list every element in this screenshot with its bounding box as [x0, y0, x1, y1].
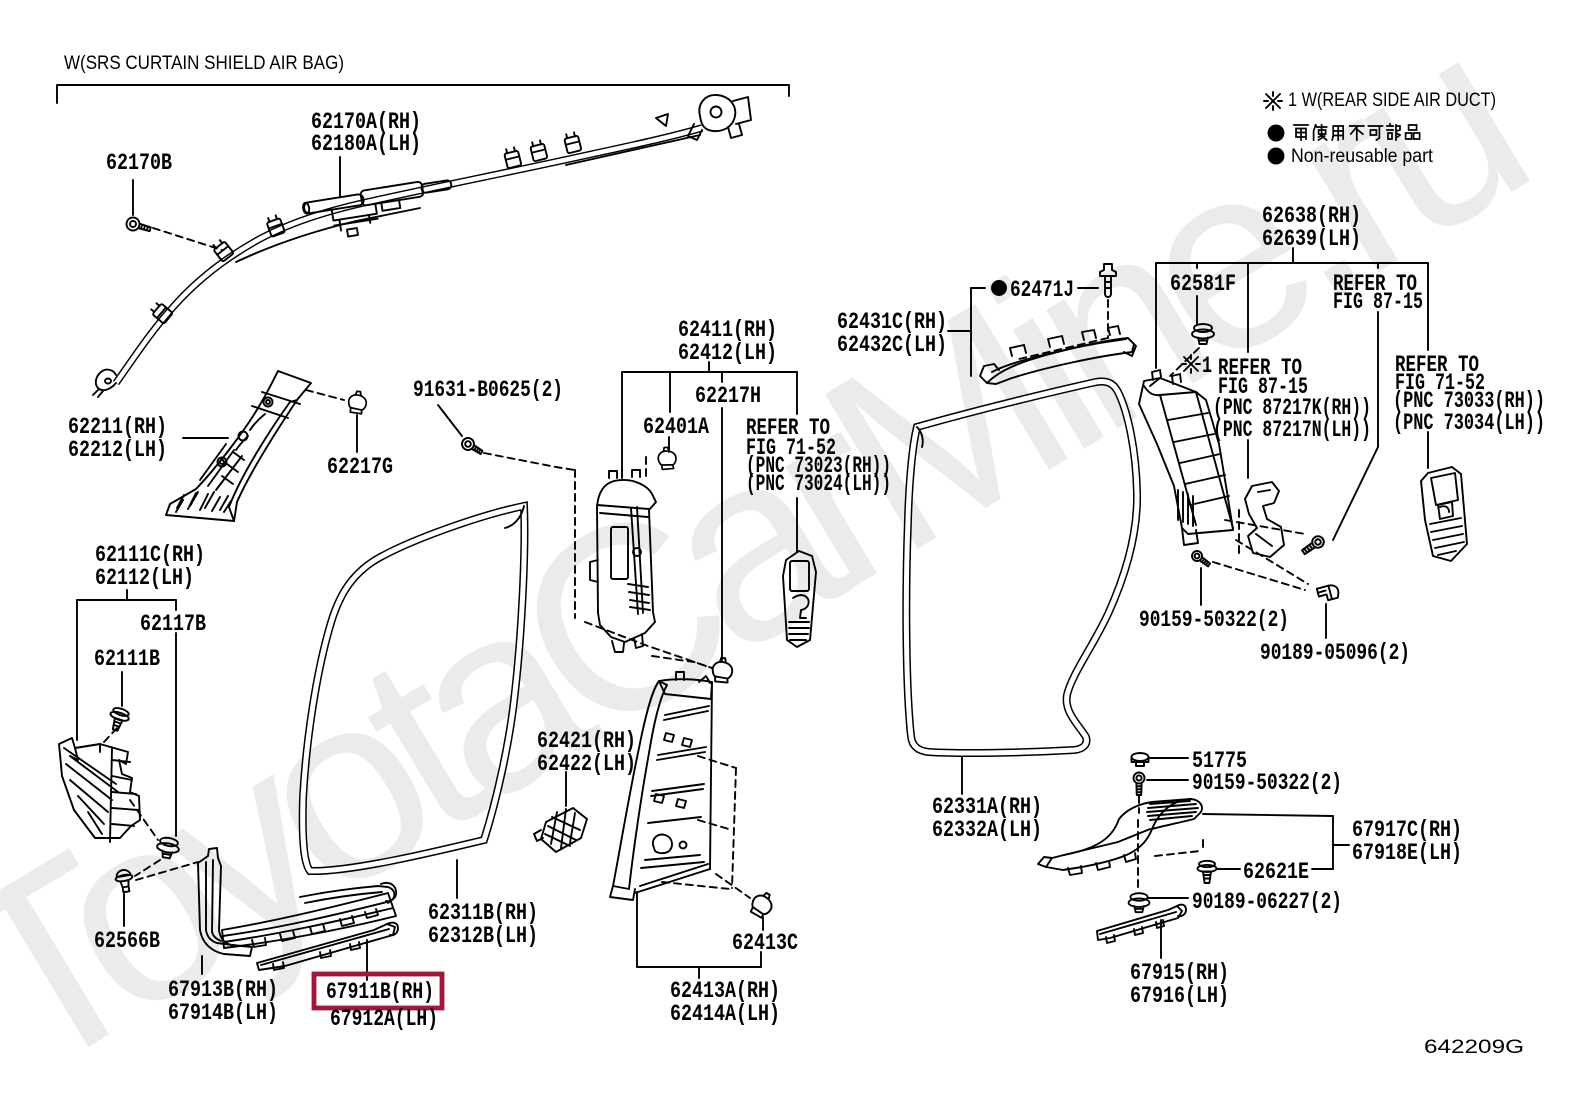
svg-text:Non-reusable part: Non-reusable part: [1291, 146, 1434, 167]
svg-text:62217G: 62217G: [327, 454, 393, 480]
svg-text:62581F: 62581F: [1170, 271, 1236, 297]
svg-text:90159-50322(2): 90159-50322(2): [1192, 770, 1342, 796]
svg-text:62471J: 62471J: [1010, 277, 1074, 303]
svg-text:62412(LH): 62412(LH): [678, 340, 777, 366]
svg-text:62566B: 62566B: [94, 928, 160, 954]
svg-text:62432C(LH): 62432C(LH): [837, 332, 947, 358]
svg-text:62401A: 62401A: [643, 414, 709, 440]
svg-text:67912A(LH): 67912A(LH): [330, 1006, 438, 1032]
svg-text:67918E(LH): 67918E(LH): [1352, 840, 1462, 866]
svg-text:90189-06227(2): 90189-06227(2): [1192, 889, 1342, 915]
svg-text:W(SRS CURTAIN SHIELD AIR BAG): W(SRS CURTAIN SHIELD AIR BAG): [64, 53, 344, 74]
svg-text:90189-05096(2): 90189-05096(2): [1260, 640, 1410, 666]
svg-text:62170B: 62170B: [106, 150, 172, 176]
svg-text:91631-B0625(2): 91631-B0625(2): [413, 377, 563, 403]
svg-text:(PNC 87217N(LH)): (PNC 87217N(LH)): [1213, 417, 1371, 443]
svg-text:62180A(LH): 62180A(LH): [311, 131, 421, 157]
svg-text:62312B(LH): 62312B(LH): [428, 923, 538, 949]
svg-text:642209G: 642209G: [1424, 1037, 1524, 1058]
svg-text:62212(LH): 62212(LH): [68, 437, 167, 463]
svg-text:(PNC 73024(LH)): (PNC 73024(LH)): [746, 471, 891, 497]
svg-text:62111B: 62111B: [94, 646, 160, 672]
svg-text:(PNC 73034(LH)): (PNC 73034(LH)): [1393, 410, 1545, 436]
svg-text:1: 1: [1202, 353, 1212, 379]
svg-text:90159-50322(2): 90159-50322(2): [1139, 607, 1289, 633]
svg-text:62117B: 62117B: [140, 611, 206, 637]
svg-text:62112(LH): 62112(LH): [95, 565, 194, 591]
svg-text:FIG 87-15: FIG 87-15: [1333, 289, 1423, 315]
svg-text:67916(LH): 67916(LH): [1130, 983, 1229, 1009]
svg-text:1 W(REAR SIDE AIR DUCT): 1 W(REAR SIDE AIR DUCT): [1288, 90, 1496, 111]
svg-text:67914B(LH): 67914B(LH): [168, 1000, 278, 1026]
svg-text:62639(LH): 62639(LH): [1262, 226, 1361, 252]
svg-text:62414A(LH): 62414A(LH): [670, 1001, 780, 1027]
svg-text:62217H: 62217H: [695, 383, 761, 409]
svg-text:62413C: 62413C: [732, 930, 798, 956]
svg-text:62332A(LH): 62332A(LH): [932, 817, 1042, 843]
svg-text:67911B(RH): 67911B(RH): [326, 979, 434, 1005]
svg-text:62422(LH): 62422(LH): [537, 751, 636, 777]
svg-text:62621E: 62621E: [1243, 859, 1309, 885]
